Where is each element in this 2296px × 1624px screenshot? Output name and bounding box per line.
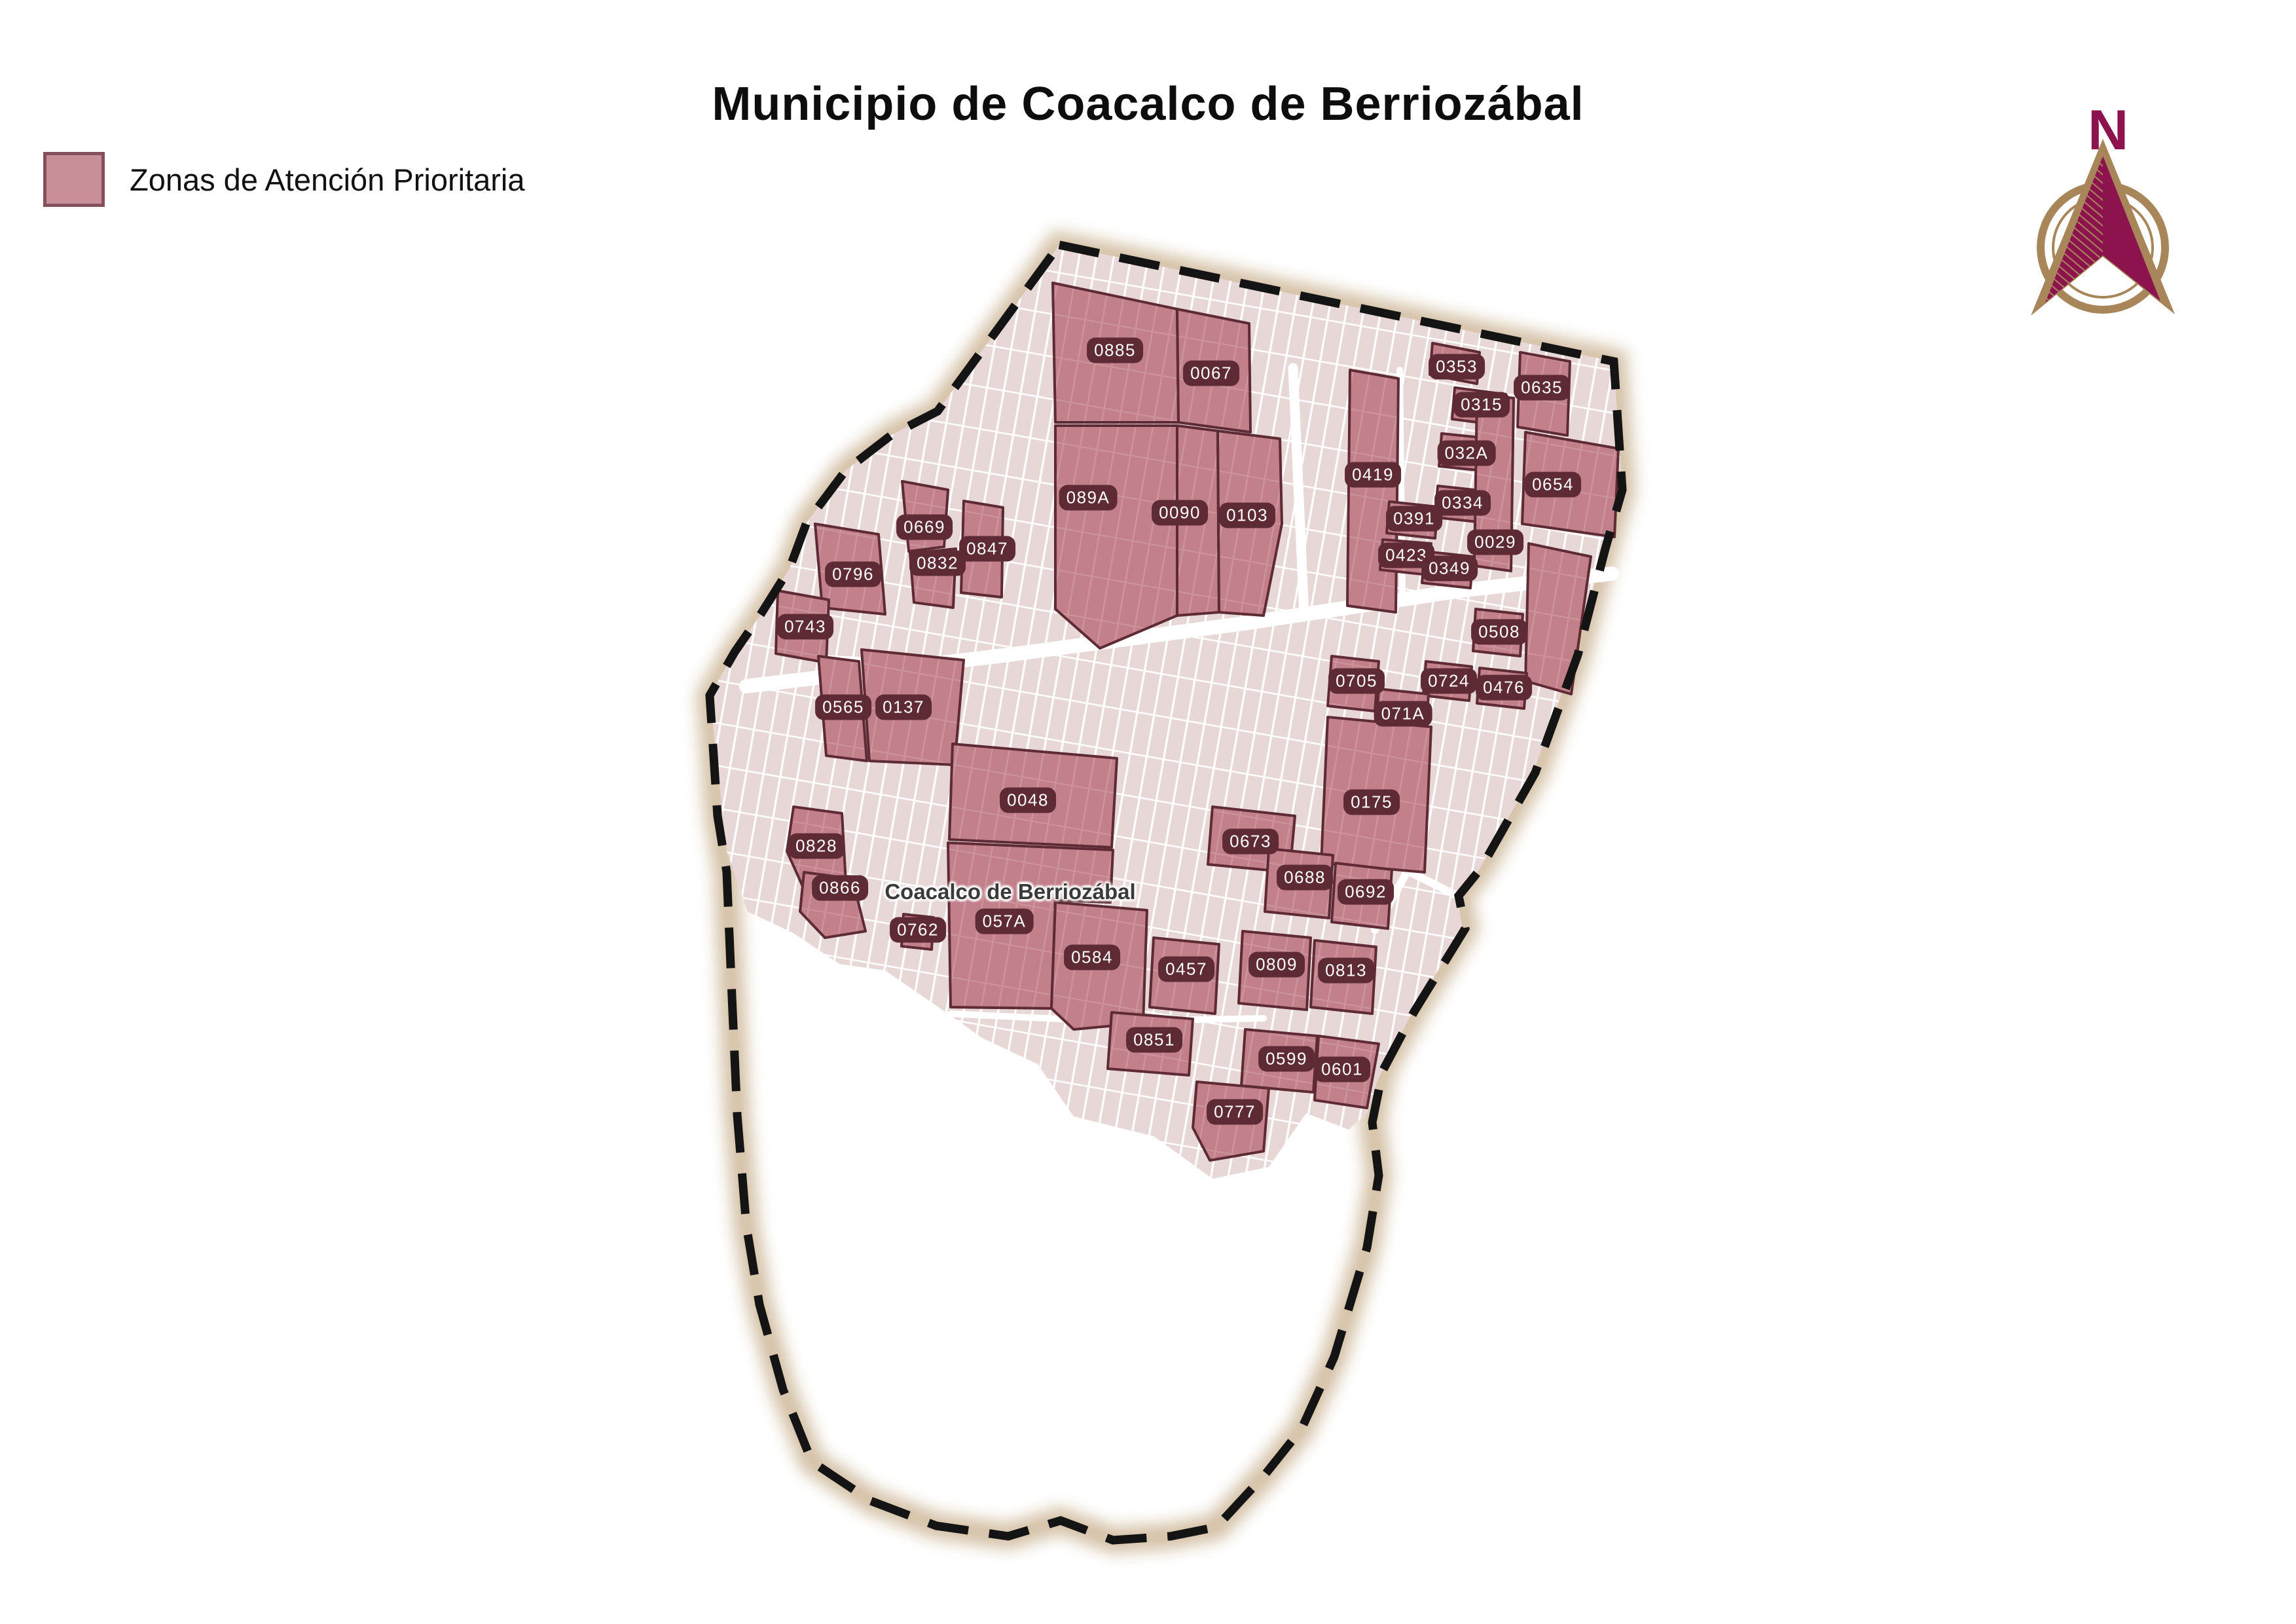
zone-label: 0419 [1345,462,1401,488]
zone-label: 0565 [815,695,871,720]
zone-shape [1055,426,1177,648]
legend-swatch [43,152,105,207]
page-title: Municipio de Coacalco de Berriozábal [0,77,2296,131]
zone-label: 0762 [890,917,946,943]
legend-label: Zonas de Atención Prioritaria [130,162,525,198]
zone-label: 0599 [1258,1046,1315,1072]
zone-label: 0885 [1087,338,1143,363]
municipality-map [0,0,2296,1624]
zone-label: 0813 [1318,958,1374,984]
zone-label: 0705 [1328,669,1385,694]
zone-label: 071A [1374,701,1432,727]
zone-label: 0353 [1429,354,1485,380]
zone-label: 0832 [909,551,966,576]
zone-label: 0692 [1338,879,1394,905]
zone-label: 0175 [1343,790,1400,815]
zone-label: 0724 [1421,669,1477,694]
zone-label: 032A [1438,441,1496,466]
zone-label: 0654 [1525,472,1581,498]
zone-label: 0349 [1421,556,1478,581]
zone-label: 0090 [1152,500,1208,526]
zone-shape [1347,370,1398,612]
zone-label: 0809 [1248,952,1305,978]
zone-label: 0851 [1126,1027,1182,1053]
city-label: Coacalco de Berriozábal [884,879,1135,904]
zone-label: 089A [1059,485,1118,511]
zone-label: 0457 [1158,957,1214,982]
zone-label: 0777 [1207,1099,1263,1125]
zone-label: 0137 [875,695,932,720]
map-stage: 08850067035306350315032A06540419089A0090… [0,0,2296,1624]
zone-label: 0584 [1064,945,1120,970]
zone-label: 0315 [1453,392,1510,418]
legend: Zonas de Atención Prioritaria [43,152,525,207]
zone-label: 0847 [959,536,1015,562]
zone-label: 0828 [788,834,845,859]
zone-label: 0743 [777,614,833,640]
zone-label: 0476 [1476,675,1532,701]
zone-label: 0601 [1314,1057,1370,1082]
zone-label: 0796 [825,562,881,587]
zone-label: 0029 [1467,530,1523,555]
zone-label: 057A [975,909,1034,934]
zone-label: 0048 [1000,788,1056,813]
zone-label: 0669 [896,515,953,540]
zone-label: 0103 [1219,503,1275,528]
zone-label: 0334 [1434,490,1491,516]
zone-label: 0067 [1183,361,1239,386]
zone-label: 0866 [812,876,868,901]
zone-label: 0673 [1222,829,1279,855]
north-arrow-graphic [2023,98,2193,334]
zone-label: 0508 [1471,619,1527,645]
zone-label: 0635 [1514,375,1570,401]
zone-label: 0688 [1277,865,1333,891]
north-arrow: N [2023,98,2193,334]
zone-label: 0391 [1386,506,1442,532]
